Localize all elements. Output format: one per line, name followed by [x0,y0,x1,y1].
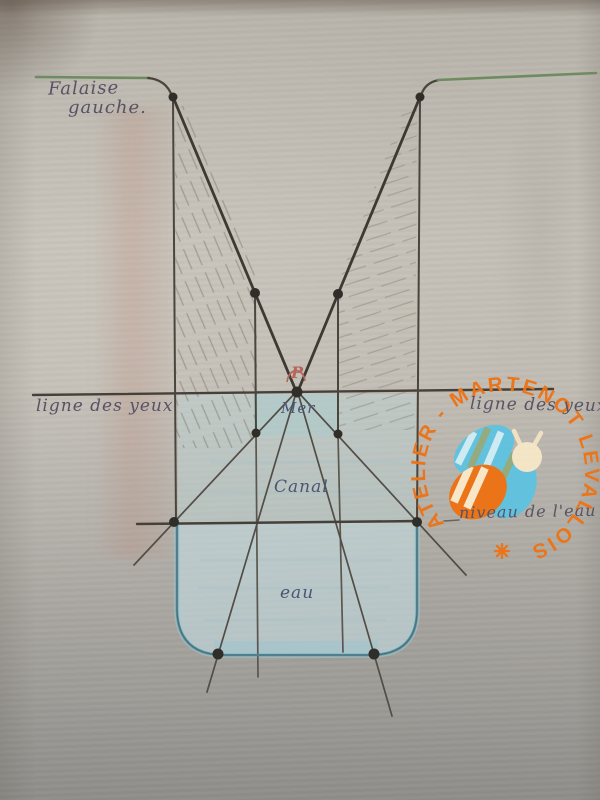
left-cliff-red-wash [92,108,178,558]
dot-water-level-left [169,517,179,527]
label-canal: Canal [274,477,329,497]
dot-basin-bottom-left [213,649,224,660]
dot-basin-bottom-right [369,649,380,660]
dot-mid-right [333,289,343,299]
label-eye-line-left: ligne des yeux [36,396,173,416]
dot-cliff-top-left [169,93,178,102]
dot-water-level-right [412,517,422,527]
cliff-top-lines [36,73,596,96]
vanishing-point-dot [292,387,303,398]
left-inner-vertical [255,296,256,433]
label-falaise-line2: gauche. [68,97,147,118]
photographed-drawing-page: ATELIER - MARTENOT LEVALLOIS Falaise gau… [0,0,600,800]
cliff-top-right-curve [421,80,439,96]
dot-sea-left [252,429,261,438]
label-eye-line-right: ligne des yeux [470,394,600,416]
watermark-asterisk [495,544,509,558]
dot-cliff-top-right [416,93,425,102]
label-vanishing-point: P [291,363,304,382]
label-eau: eau [280,583,314,603]
cliff-top-left-curve [148,78,172,96]
basin-bottom-strip [214,641,378,653]
label-mer: Mer [281,399,315,417]
bee-head [512,442,542,472]
cliff-top-right-green-line [438,73,596,80]
dot-mid-left [250,288,260,298]
dot-sea-right [334,430,343,439]
left-cliff-hatching [175,106,257,448]
label-niveau-eau: niveau de l'eau [459,501,597,522]
